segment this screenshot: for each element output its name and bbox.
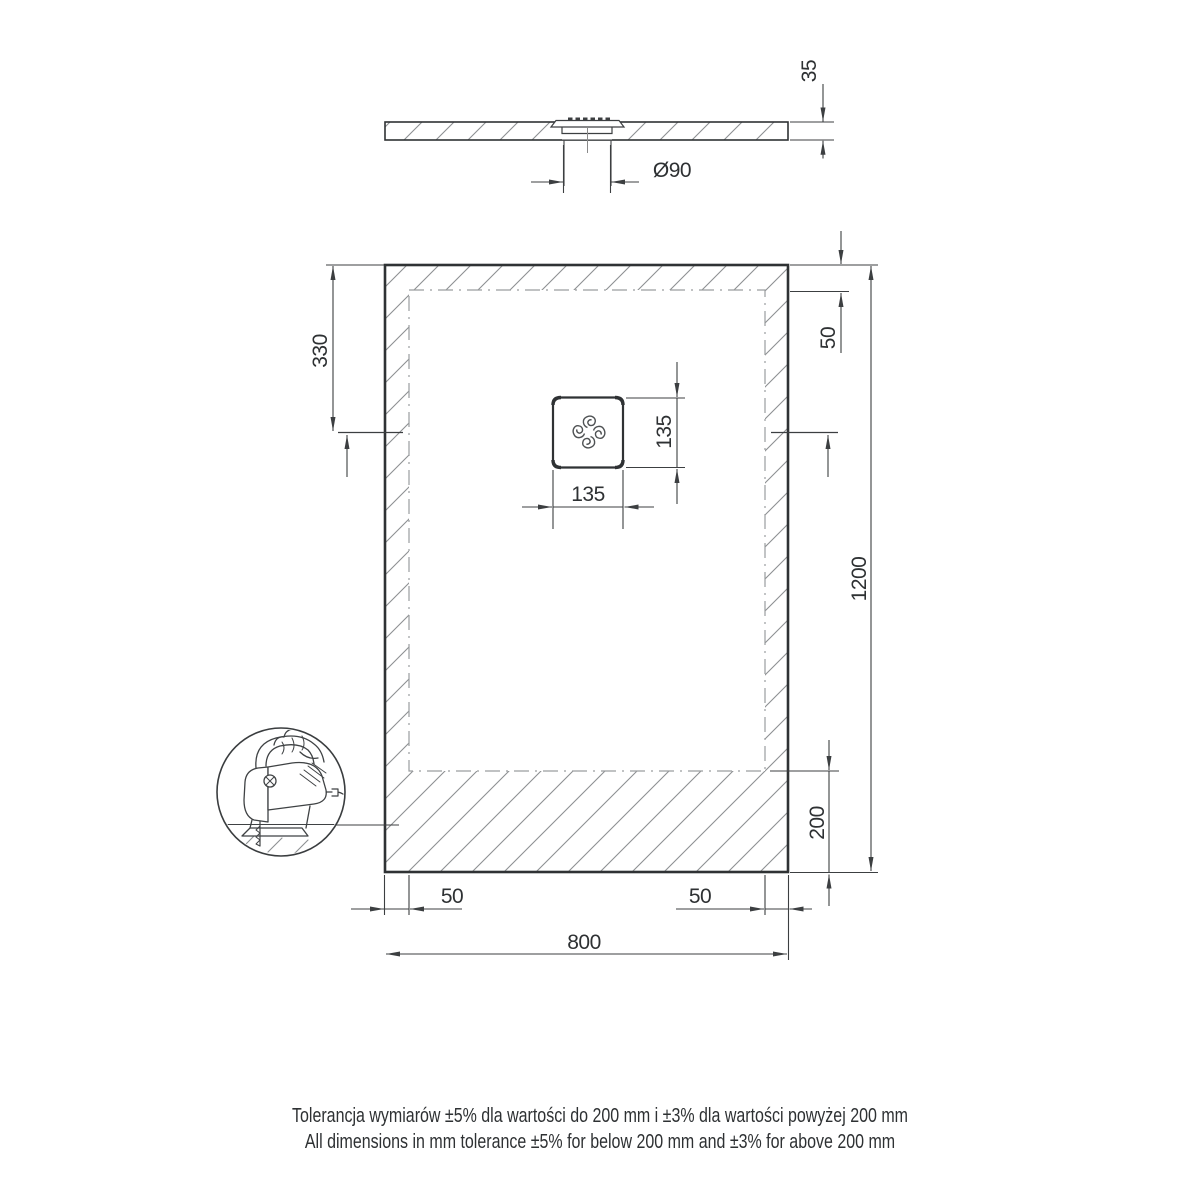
dim-label-o90: Ø90 [653,159,691,182]
cuttable-area-hatch [385,265,788,872]
dim-label-50-top: 50 [817,327,840,349]
section-view: 35 Ø90 [385,60,834,193]
dim-drain-diameter [531,145,639,193]
dim-label-200: 200 [806,806,829,840]
dim-label-800: 800 [567,931,601,954]
dim-label-135-h: 135 [571,483,605,506]
jigsaw-callout [217,722,399,856]
dim-label-330: 330 [309,334,332,368]
trim-boundary-dashed [409,290,765,771]
plan-view: 330 50 1200 200 [309,231,878,960]
dim-label-35: 35 [798,60,821,82]
dim-label-1200: 1200 [848,557,871,602]
dim-tray-thickness [790,84,834,159]
tolerance-note-pl: Tolerancja wymiarów ±5% dla wartości do … [120,1104,1080,1130]
technical-drawing: 35 Ø90 [0,0,1200,1200]
dim-label-50-right: 50 [689,885,711,908]
dim-label-50-left: 50 [441,885,463,908]
dim-label-135-v: 135 [653,415,676,449]
drawing-canvas: 35 Ø90 [0,0,1200,1200]
tolerance-note-en: All dimensions in mm tolerance ±5% for b… [120,1130,1080,1156]
tolerance-notes: Tolerancja wymiarów ±5% dla wartości do … [0,1104,1200,1155]
drain-square [553,398,623,468]
